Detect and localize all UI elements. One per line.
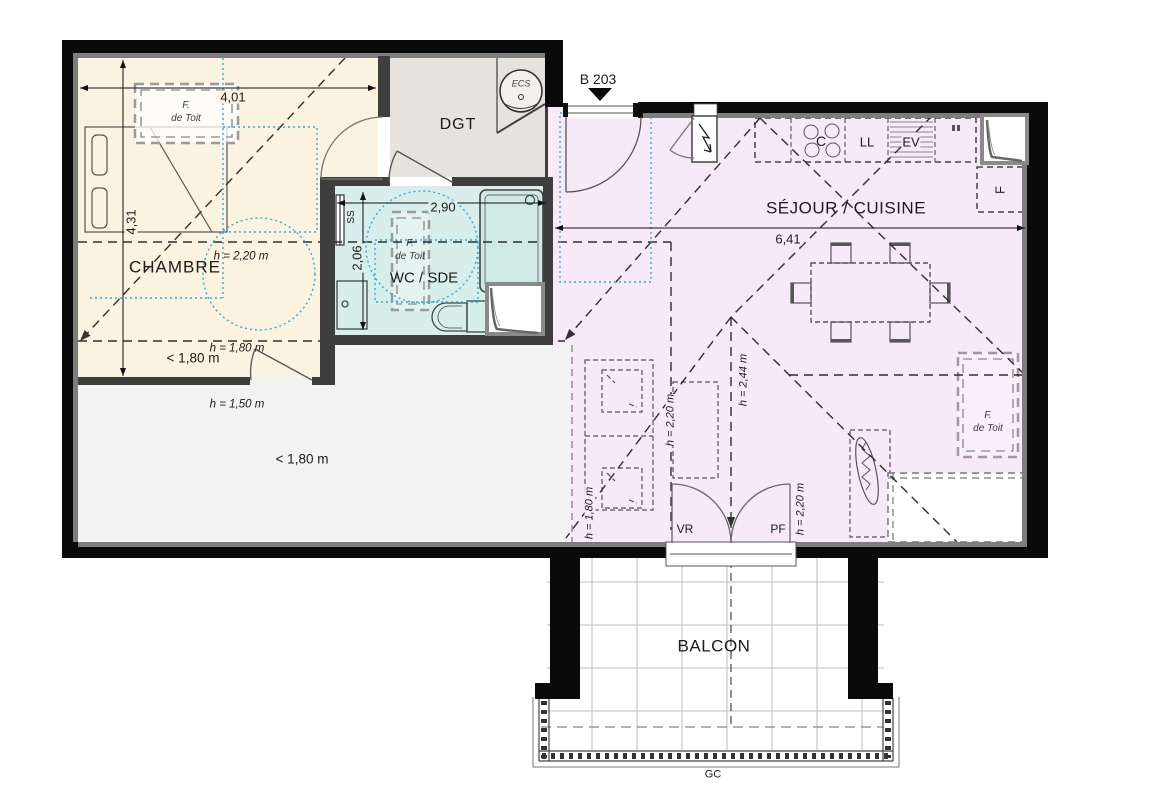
under-eaves-fill-2: [320, 345, 572, 377]
height-eaves-left-h: h = 1,80 m: [210, 343, 265, 355]
railing-label: GC: [705, 770, 722, 781]
dim-chambre-width: 4,01: [218, 91, 247, 104]
room-label-chambre: CHAMBRE: [129, 259, 221, 276]
sink-label: EV: [901, 136, 920, 149]
entry-door-sill: [563, 102, 638, 118]
dim-chambre-length: 4,31: [125, 207, 138, 236]
fridge-label: F: [994, 186, 1007, 194]
dim-wc-width: 2,90: [428, 201, 457, 214]
water-heater-icon: [500, 70, 542, 112]
height-sejour-center-left: h = 2,20 m: [666, 394, 677, 446]
height-eaves-right: < 1,80 m: [276, 452, 329, 466]
balcony-door-sill: [666, 542, 796, 566]
roof-window-label-chambre: F. de Toit: [171, 99, 201, 125]
water-heater-label: ECS: [512, 80, 531, 89]
washing-machine-label: LL: [860, 136, 874, 149]
dim-sejour-width: 6,41: [773, 233, 802, 246]
shower: [480, 190, 543, 292]
balcony-wall-left: [550, 558, 580, 684]
towel-dryer-label: SS: [347, 210, 357, 223]
electrical-panel: [692, 104, 717, 162]
room-label-sejour-cuisine: SÉJOUR / CUISINE: [766, 200, 926, 217]
roof-window-text: F.: [171, 99, 201, 112]
height-sejour-ridge: h = 2,44 m: [739, 354, 750, 406]
roof-window-text: de Toit: [171, 112, 201, 125]
height-chambre: h = 2,20 m: [214, 251, 269, 263]
french-window-label: PF: [770, 523, 785, 535]
height-sejour-left: h = 1,80 m: [585, 487, 596, 539]
unit-number-label: B 203: [580, 72, 617, 86]
cooktop-label: C: [816, 134, 826, 148]
roof-window-label-wc: F. de Toit: [395, 237, 425, 263]
height-eaves-mid: h = 1,50 m: [210, 399, 265, 411]
height-sejour-right: h = 2,20 m: [796, 483, 807, 535]
roof-window-sejour: [958, 353, 1018, 457]
room-label-balcon: BALCON: [678, 638, 751, 655]
low-height-corner: [888, 473, 1025, 542]
roof-window-text: de Toit: [973, 422, 1003, 435]
room-label-dgt: DGT: [440, 117, 477, 133]
balcony-wall-right: [848, 558, 878, 684]
dim-wc-length: 2,06: [351, 243, 364, 272]
balcony: [533, 558, 899, 767]
floor-plan: CHAMBRE DGT WC / SDE SÉJOUR / CUISINE BA…: [0, 0, 1158, 800]
wc-roof-window: [487, 284, 543, 334]
entrance-marker: [588, 88, 612, 101]
roller-shutter-label: VR: [677, 523, 694, 535]
roof-window-text: F.: [395, 237, 425, 250]
room-label-wc-sde: WC / SDE: [390, 271, 458, 286]
kitchen-roof-window: [982, 115, 1027, 163]
roof-window-label-sejour: F. de Toit: [973, 409, 1003, 435]
roof-window-text: de Toit: [395, 250, 425, 263]
roof-window-text: F.: [973, 409, 1003, 422]
